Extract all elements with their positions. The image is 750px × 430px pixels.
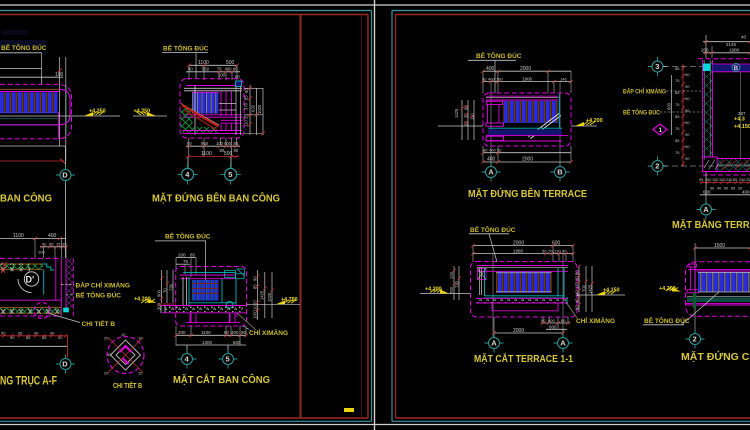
svg-text:BAN CÔNG: BAN CÔNG xyxy=(0,192,52,205)
svg-text:100: 100 xyxy=(38,250,45,255)
svg-text:1900: 1900 xyxy=(729,47,740,52)
svg-text:400: 400 xyxy=(548,318,555,323)
svg-text:85: 85 xyxy=(244,95,249,100)
svg-text:80: 80 xyxy=(561,318,566,323)
svg-text:20: 20 xyxy=(244,114,249,119)
svg-text:MẶT CẮT TERRACE 1-1: MẶT CẮT TERRACE 1-1 xyxy=(474,352,573,365)
svg-text:90: 90 xyxy=(685,96,690,101)
svg-text:20: 20 xyxy=(575,276,580,281)
svg-text:90: 90 xyxy=(233,67,238,72)
svg-text:MẶT ĐỨNG BÊN TERRACE: MẶT ĐỨNG BÊN TERRACE xyxy=(468,187,587,200)
svg-text:50: 50 xyxy=(575,270,580,275)
svg-text:1425: 1425 xyxy=(454,108,459,118)
svg-text:110: 110 xyxy=(244,120,249,127)
svg-text:200: 200 xyxy=(178,330,186,335)
svg-text:20: 20 xyxy=(104,371,109,376)
svg-text:600: 600 xyxy=(233,340,241,345)
svg-text:1300: 1300 xyxy=(202,340,213,345)
svg-text:+4.250: +4.250 xyxy=(134,109,151,115)
svg-text:90: 90 xyxy=(710,187,714,191)
svg-text:1980: 1980 xyxy=(513,248,524,253)
svg-text:BÊ TÔNG ĐÚC: BÊ TÔNG ĐÚC xyxy=(623,108,660,117)
svg-text:CHI TIẾT B: CHI TIẾT B xyxy=(113,380,142,390)
svg-text:B: B xyxy=(557,168,563,177)
svg-text:400: 400 xyxy=(742,190,750,195)
svg-text:ĐẮP CHỈ XIMĂNG: ĐẮP CHỈ XIMĂNG xyxy=(76,281,130,290)
svg-text:75: 75 xyxy=(675,78,680,83)
svg-text:90: 90 xyxy=(724,187,728,191)
svg-text:+4.250: +4.250 xyxy=(89,109,106,115)
svg-text:240: 240 xyxy=(726,178,732,182)
svg-text:85: 85 xyxy=(253,284,258,289)
svg-text:75: 75 xyxy=(675,150,680,155)
svg-text:+4.200: +4.200 xyxy=(659,286,676,292)
svg-text:600: 600 xyxy=(549,324,557,329)
svg-text:75: 75 xyxy=(675,126,680,131)
svg-text:600: 600 xyxy=(703,190,711,195)
svg-text:+4.750: +4.750 xyxy=(281,297,298,303)
svg-text:NG TRỤC A-F: NG TRỤC A-F xyxy=(0,376,57,388)
svg-text:80: 80 xyxy=(562,248,567,253)
svg-text:90: 90 xyxy=(685,144,690,149)
svg-text:A: A xyxy=(560,339,566,348)
svg-text:MẶT ĐỨNG BÊN BAN CÔNG: MẶT ĐỨNG BÊN BAN CÔNG xyxy=(152,192,280,205)
svg-text:+4.200: +4.200 xyxy=(425,286,442,292)
svg-text:CHỈ XIMĂNG: CHỈ XIMĂNG xyxy=(576,316,615,325)
svg-text:D: D xyxy=(62,360,68,369)
svg-text:400: 400 xyxy=(489,148,496,153)
svg-text:2: 2 xyxy=(655,162,659,171)
svg-text:75: 75 xyxy=(675,102,680,107)
svg-text:85: 85 xyxy=(190,252,196,257)
svg-text:200: 200 xyxy=(178,252,186,257)
svg-text:+4.3: +4.3 xyxy=(734,117,745,123)
svg-text:+4.150: +4.150 xyxy=(603,287,620,293)
svg-text:1906: 1906 xyxy=(522,76,533,81)
svg-text:MẶT CẮT BAN CÔNG: MẶT CẮT BAN CÔNG xyxy=(173,373,270,386)
svg-text:700: 700 xyxy=(449,286,454,294)
svg-text:90: 90 xyxy=(253,276,258,281)
svg-text:90: 90 xyxy=(1,331,6,336)
svg-text:BÊ TÔNG ĐÚC: BÊ TÔNG ĐÚC xyxy=(644,316,690,325)
svg-text:15: 15 xyxy=(138,371,143,376)
svg-text:100: 100 xyxy=(55,72,64,78)
svg-text:950: 950 xyxy=(202,67,210,72)
svg-text:90: 90 xyxy=(464,105,469,110)
svg-text:D': D' xyxy=(26,275,35,285)
svg-text:70: 70 xyxy=(548,248,553,253)
svg-text:1020: 1020 xyxy=(267,292,272,302)
svg-text:1: 1 xyxy=(659,127,663,134)
svg-text:A: A xyxy=(488,168,494,177)
svg-text:600: 600 xyxy=(667,102,672,110)
svg-text:BÊ TÔNG ĐÚC: BÊ TÔNG ĐÚC xyxy=(76,291,122,300)
svg-text:10: 10 xyxy=(138,336,143,341)
svg-text:370: 370 xyxy=(244,102,249,110)
svg-text:400: 400 xyxy=(225,67,233,72)
svg-text:90: 90 xyxy=(685,132,690,137)
svg-text:100: 100 xyxy=(253,311,258,319)
svg-text:5: 5 xyxy=(226,355,230,364)
svg-text:20: 20 xyxy=(104,336,109,341)
svg-text:BÊ TÔNG ĐÚC: BÊ TÔNG ĐÚC xyxy=(165,231,211,240)
svg-text:100: 100 xyxy=(719,178,725,182)
svg-text:2: 2 xyxy=(693,335,697,344)
svg-text:300: 300 xyxy=(157,302,162,310)
svg-text:40: 40 xyxy=(741,35,747,40)
svg-text:90: 90 xyxy=(685,72,690,77)
svg-text:700: 700 xyxy=(582,284,587,292)
svg-text:90: 90 xyxy=(685,156,690,161)
svg-text:1425: 1425 xyxy=(588,284,593,294)
svg-text:+4.200: +4.200 xyxy=(134,297,151,303)
svg-text:85: 85 xyxy=(675,114,680,119)
svg-text:75: 75 xyxy=(183,259,189,264)
svg-text:387: 387 xyxy=(738,111,746,116)
svg-text:90: 90 xyxy=(244,88,249,93)
svg-text:50: 50 xyxy=(542,248,547,253)
svg-text:45: 45 xyxy=(107,352,112,357)
svg-text:B: B xyxy=(734,66,739,72)
svg-text:90: 90 xyxy=(685,84,690,89)
svg-text:90: 90 xyxy=(234,148,239,153)
svg-text:A: A xyxy=(491,339,497,348)
svg-text:BÊ TÔNG ĐÚC: BÊ TÔNG ĐÚC xyxy=(470,225,516,234)
svg-text:BÊ TÔNG ĐÚC: BÊ TÔNG ĐÚC xyxy=(1,43,47,52)
svg-text:100: 100 xyxy=(216,141,224,146)
svg-text:35: 35 xyxy=(464,113,469,118)
svg-text:85: 85 xyxy=(675,138,680,143)
svg-text:900: 900 xyxy=(157,289,162,297)
svg-text:240: 240 xyxy=(739,178,745,182)
svg-text:10: 10 xyxy=(121,332,126,337)
svg-text:CHỈ XIMĂNG: CHỈ XIMĂNG xyxy=(249,328,288,337)
svg-text:90: 90 xyxy=(685,120,690,125)
svg-text:730: 730 xyxy=(455,280,460,288)
svg-text:5: 5 xyxy=(228,170,232,179)
svg-text:40: 40 xyxy=(717,187,721,191)
svg-text:1100: 1100 xyxy=(201,330,211,335)
svg-text:1425: 1425 xyxy=(260,290,265,300)
svg-text:90: 90 xyxy=(575,305,580,310)
svg-text:BÊ TÔNG ĐÚC: BÊ TÔNG ĐÚC xyxy=(163,44,209,53)
svg-text:MẶT BẰNG TERRACE: MẶT BẰNG TERRACE xyxy=(672,218,750,231)
svg-text:120: 120 xyxy=(449,271,454,279)
svg-text:A: A xyxy=(703,205,709,214)
svg-text:BÊ TÔNG ĐÚC: BÊ TÔNG ĐÚC xyxy=(476,51,522,60)
svg-text:620: 620 xyxy=(251,104,256,112)
svg-text:730: 730 xyxy=(169,283,174,291)
svg-text:100: 100 xyxy=(712,178,718,182)
svg-text:1020: 1020 xyxy=(257,104,262,114)
svg-text:MẶT ĐỨNG CH: MẶT ĐỨNG CH xyxy=(681,350,750,363)
svg-text:D: D xyxy=(62,171,68,180)
svg-text:20: 20 xyxy=(464,121,469,126)
svg-text:+4.200: +4.200 xyxy=(586,118,603,124)
svg-text:2145: 2145 xyxy=(726,42,737,47)
svg-text:3: 3 xyxy=(655,62,659,71)
svg-text:146: 146 xyxy=(560,76,567,81)
svg-text:70: 70 xyxy=(163,288,168,293)
svg-text:ĐẮP CHỈ XIMĂNG: ĐẮP CHỈ XIMĂNG xyxy=(623,87,666,96)
svg-text:85: 85 xyxy=(731,187,735,191)
svg-text:+4.150: +4.150 xyxy=(734,124,750,130)
